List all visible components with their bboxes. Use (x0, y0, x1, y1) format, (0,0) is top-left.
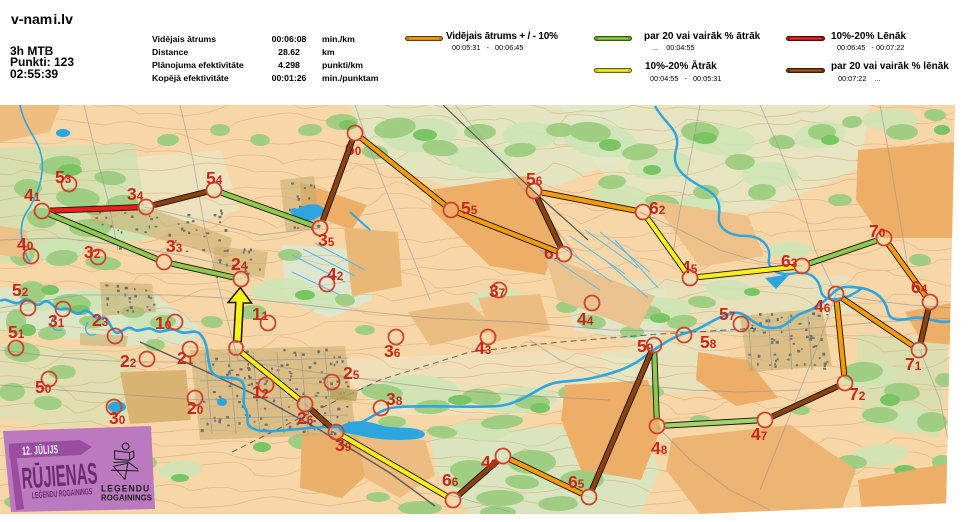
svg-text:LEĢENDU: LEĢENDU (101, 483, 150, 494)
svg-text:ROGAININGS: ROGAININGS (101, 493, 152, 502)
svg-text:12. JŪLIJS: 12. JŪLIJS (22, 443, 59, 459)
